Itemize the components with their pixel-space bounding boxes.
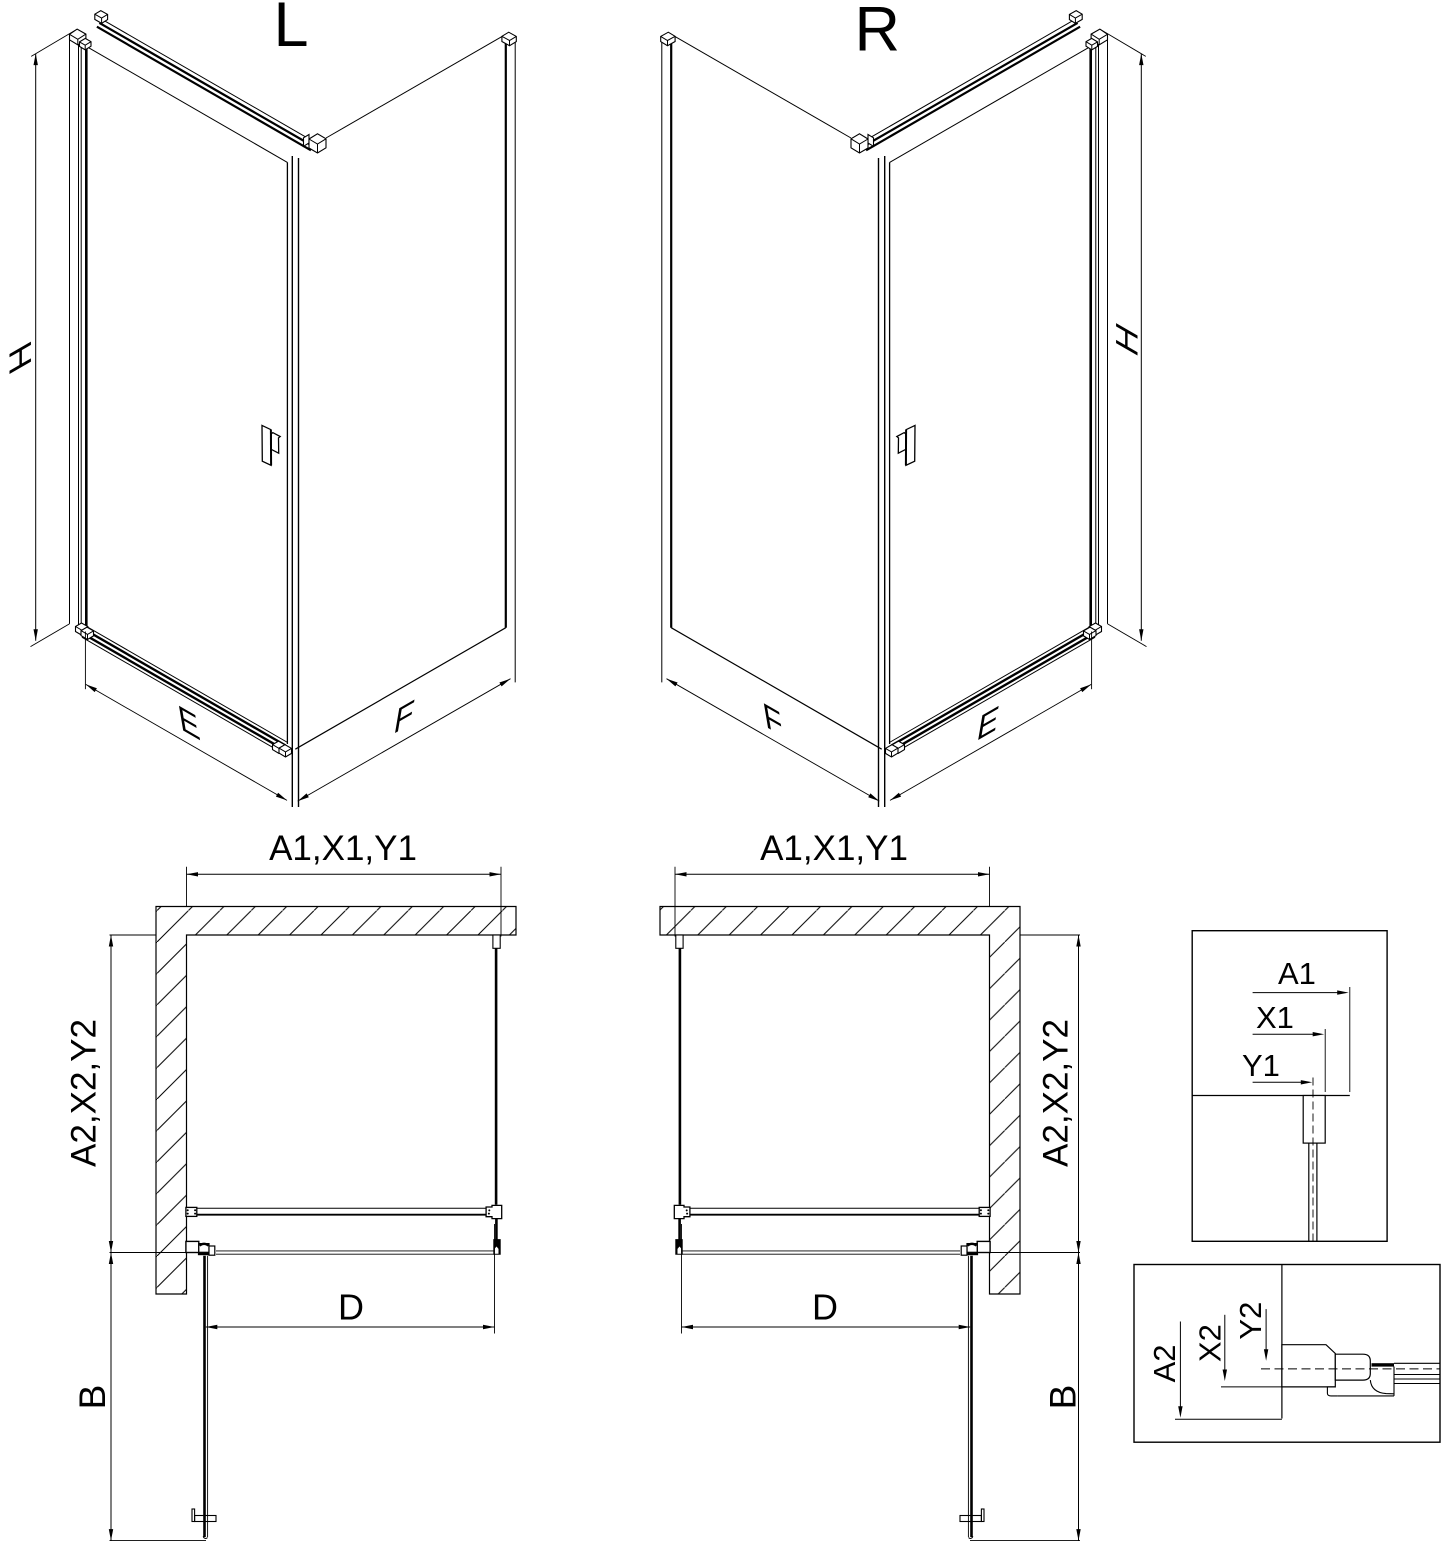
svg-text:A2: A2 — [1147, 1344, 1182, 1382]
svg-text:B: B — [72, 1385, 113, 1410]
svg-text:L: L — [274, 0, 309, 60]
svg-text:A2,X2,Y2: A2,X2,Y2 — [65, 1019, 104, 1167]
svg-text:A1,X1,Y1: A1,X1,Y1 — [269, 829, 417, 868]
svg-text:A2,X2,Y2: A2,X2,Y2 — [1037, 1019, 1076, 1167]
svg-text:B: B — [1043, 1385, 1084, 1410]
svg-text:R: R — [855, 0, 901, 65]
svg-text:Y2: Y2 — [1233, 1302, 1268, 1340]
svg-text:A1: A1 — [1278, 956, 1316, 991]
svg-text:Y1: Y1 — [1242, 1048, 1280, 1083]
svg-text:D: D — [812, 1286, 838, 1327]
svg-text:X1: X1 — [1256, 1000, 1294, 1035]
svg-text:D: D — [338, 1286, 364, 1327]
svg-text:X2: X2 — [1192, 1324, 1227, 1362]
svg-text:A1,X1,Y1: A1,X1,Y1 — [760, 829, 908, 868]
